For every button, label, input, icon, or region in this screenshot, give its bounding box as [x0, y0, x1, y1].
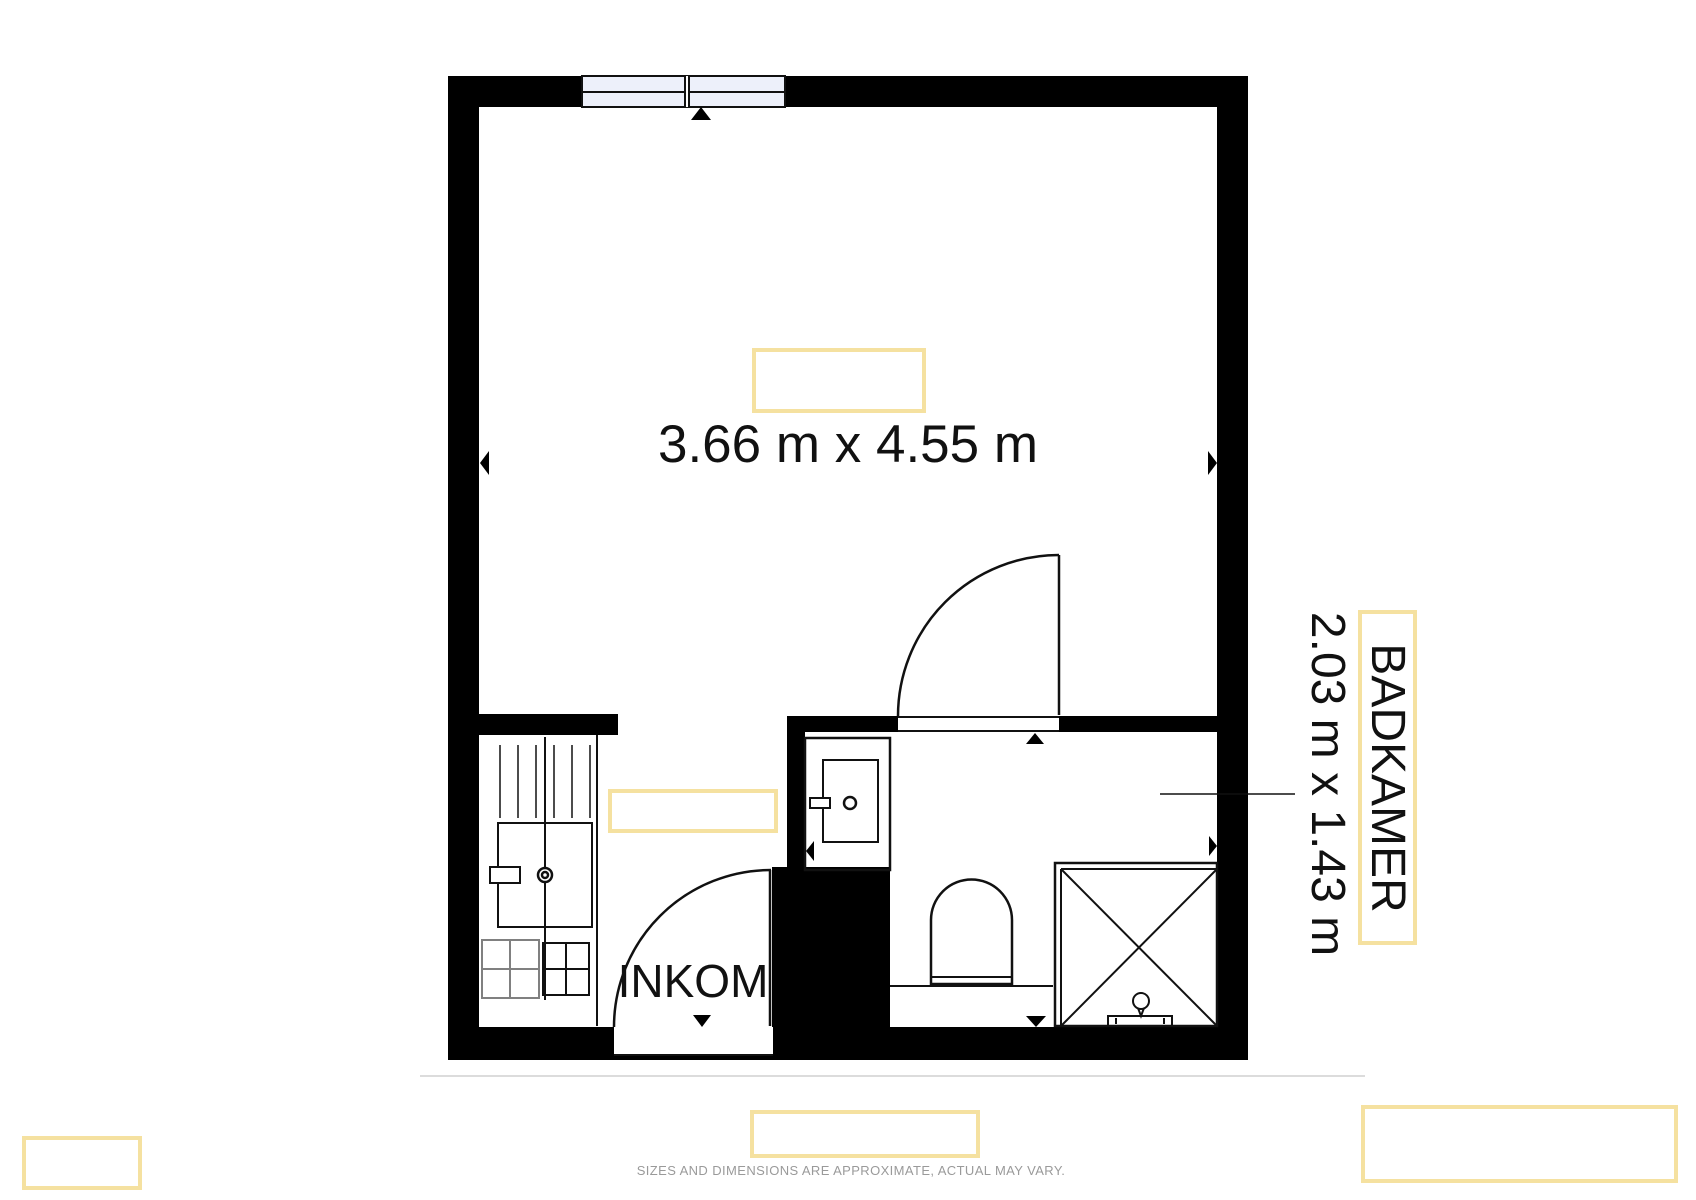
stove-burner-right: [543, 943, 589, 995]
dimension-arrow-right-bathroom: [1209, 836, 1217, 856]
highlight-box-mainroom: [752, 348, 926, 413]
highlight-box-bottom-right: [1361, 1105, 1678, 1183]
highlight-box-inkom: [608, 789, 778, 833]
dimension-arrow-left-bathroom: [806, 841, 814, 861]
badkamer-dimensions-label: 2.03 m x 1.43 m: [1303, 564, 1351, 1004]
highlight-box-bottom-left: [22, 1136, 142, 1190]
dimension-arrow-up-bathdoor: [1026, 733, 1044, 744]
dimension-arrow-down-bathroom: [1026, 1016, 1046, 1027]
dimension-arrow-right-mainroom: [1208, 451, 1217, 475]
kitchen-faucet-handle: [490, 867, 520, 883]
shower-cross: [1061, 869, 1217, 1026]
kitchen-faucet: [538, 868, 552, 882]
highlight-box-bottom-center: [750, 1110, 980, 1158]
inkom-label: INKOM: [593, 958, 793, 1004]
shower: [1055, 863, 1217, 1026]
sink-drain: [844, 797, 856, 809]
bathroom-door-arc: [898, 555, 1059, 716]
dimension-arrow-down-inkom: [693, 1015, 711, 1027]
disclaimer-text: SIZES AND DIMENSIONS ARE APPROXIMATE, AC…: [551, 1164, 1151, 1177]
dimension-arrow-up-window: [691, 107, 711, 120]
fixtures-layer: [0, 0, 1696, 1200]
dimension-arrow-left-mainroom: [480, 451, 489, 475]
toilet: [931, 880, 1012, 985]
sink-faucet: [810, 798, 830, 808]
bathroom-sink: [805, 738, 890, 870]
badkamer-label: BADKAMER: [1363, 608, 1411, 948]
plan-image-edge: [420, 1075, 1365, 1077]
kitchen-sink-unit: [490, 823, 592, 927]
sink-basin: [823, 760, 878, 842]
floorplan-page: 3.66 m x 4.55 m INKOM 2.03 m x 1.43 m BA…: [0, 0, 1696, 1200]
bathroom-door: [898, 555, 1059, 716]
shower-fixture: [1108, 993, 1172, 1026]
mainroom-dimensions-label: 3.66 m x 4.55 m: [498, 418, 1198, 471]
stove-burner-left: [482, 940, 539, 998]
